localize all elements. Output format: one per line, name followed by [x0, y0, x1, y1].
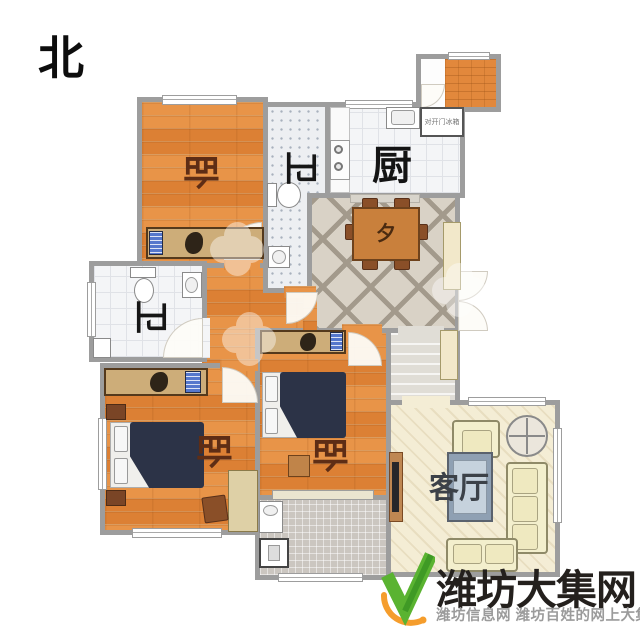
- window: [448, 52, 490, 60]
- bed-icon: [110, 422, 204, 488]
- kitchen-sink-basin: [391, 110, 415, 125]
- kitchen-label: 厨: [370, 146, 414, 188]
- bathroom-north-label: 卫: [277, 148, 317, 188]
- bedroom-southwest-label: 卧: [191, 431, 231, 471]
- watermark-flower: [432, 263, 486, 317]
- opening-hall-living: [402, 396, 450, 408]
- bedroom-north-label: 卧: [178, 152, 218, 192]
- window: [553, 428, 562, 523]
- watermark-subtitle: 潍坊信息网 潍坊百姓的网上大集: [436, 604, 640, 625]
- computer-icon: [185, 371, 201, 393]
- pillow: [114, 426, 128, 452]
- pillow: [265, 408, 278, 434]
- pillow: [265, 376, 278, 402]
- window: [132, 528, 222, 538]
- entry-foyer-floor: [445, 59, 496, 107]
- stove-burner: [334, 145, 343, 154]
- watermark-logo: [377, 549, 435, 629]
- sofa-cushion: [512, 496, 538, 522]
- bed-icon: [262, 372, 346, 438]
- nightstand: [106, 490, 126, 506]
- dining-label: 夕: [376, 224, 396, 244]
- dining-table: 夕: [352, 207, 420, 261]
- toilet-icon: [130, 267, 156, 278]
- nightstand: [106, 404, 126, 420]
- watermark-flower: [222, 312, 276, 366]
- armchair-cushion: [462, 430, 492, 454]
- window: [468, 397, 546, 406]
- window: [98, 418, 107, 490]
- floor-plan: 对开门冰箱 夕: [0, 0, 640, 640]
- chair-icon: [201, 494, 228, 523]
- window: [162, 95, 237, 105]
- washer-drum: [268, 545, 280, 561]
- sink-basin: [263, 505, 278, 516]
- north-label: 北: [38, 22, 84, 88]
- toilet-icon: [267, 183, 277, 207]
- sink-basin: [272, 250, 286, 264]
- window: [278, 573, 363, 582]
- stove-burner: [334, 162, 343, 171]
- tv-icon: [392, 462, 399, 512]
- sink-basin: [185, 277, 198, 293]
- bathroom-west-label: 卫: [127, 297, 167, 337]
- bedroom-middle-label: 卧: [307, 435, 347, 475]
- round-table-line: [526, 418, 528, 454]
- window: [87, 282, 96, 337]
- wardrobe: [228, 470, 258, 532]
- computer-icon: [330, 332, 343, 351]
- refrigerator-label: 对开门冰箱: [425, 117, 460, 127]
- living-room-label: 客厅: [420, 474, 498, 506]
- balcony-slider-door: [272, 490, 374, 500]
- sofa-cushion: [512, 468, 538, 494]
- bath-fixture: [93, 338, 111, 358]
- pillow: [114, 458, 128, 484]
- hall-cabinet: [440, 330, 458, 380]
- opening-dining-hall: [398, 326, 444, 336]
- watermark-flower: [210, 222, 264, 276]
- computer-icon: [149, 231, 163, 255]
- refrigerator: 对开门冰箱: [420, 107, 464, 137]
